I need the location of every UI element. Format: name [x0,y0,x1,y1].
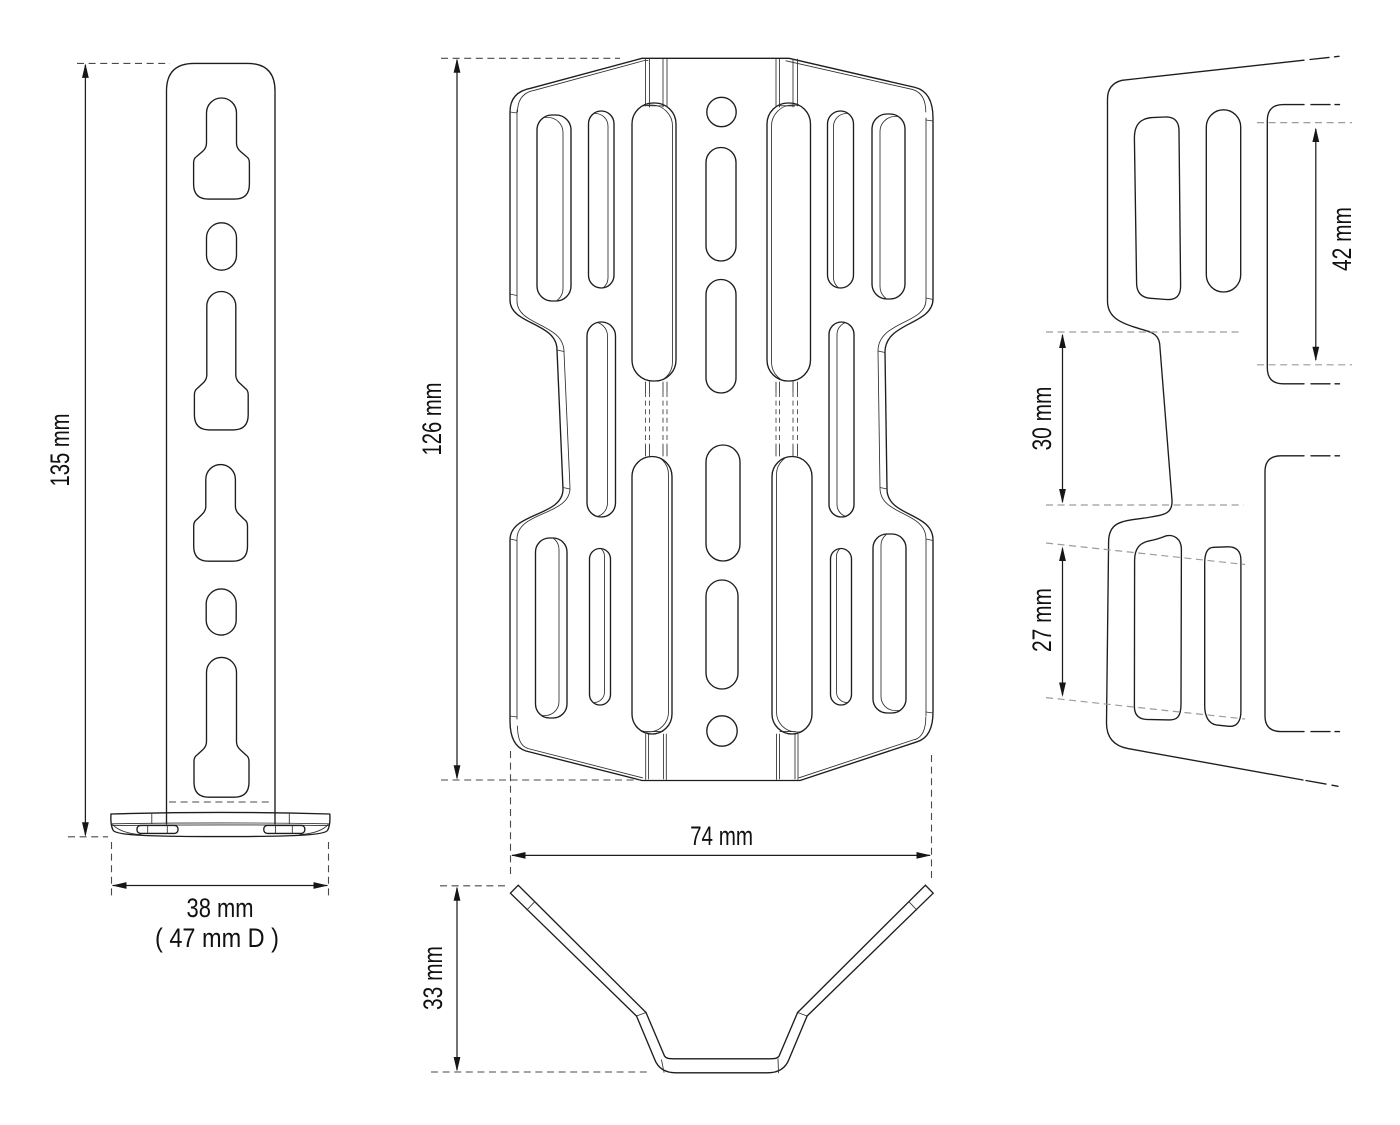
svg-text:33 mm: 33 mm [418,946,448,1010]
svg-text:74 mm: 74 mm [690,821,753,851]
svg-text:135 mm: 135 mm [45,414,75,487]
svg-text:42 mm: 42 mm [1327,207,1357,271]
svg-text:38 mm: 38 mm [187,893,254,923]
svg-text:30 mm: 30 mm [1027,387,1057,451]
svg-text:27 mm: 27 mm [1027,588,1057,652]
svg-text:( 47 mm D ): ( 47 mm D ) [155,923,279,953]
svg-text:126 mm: 126 mm [417,383,447,456]
